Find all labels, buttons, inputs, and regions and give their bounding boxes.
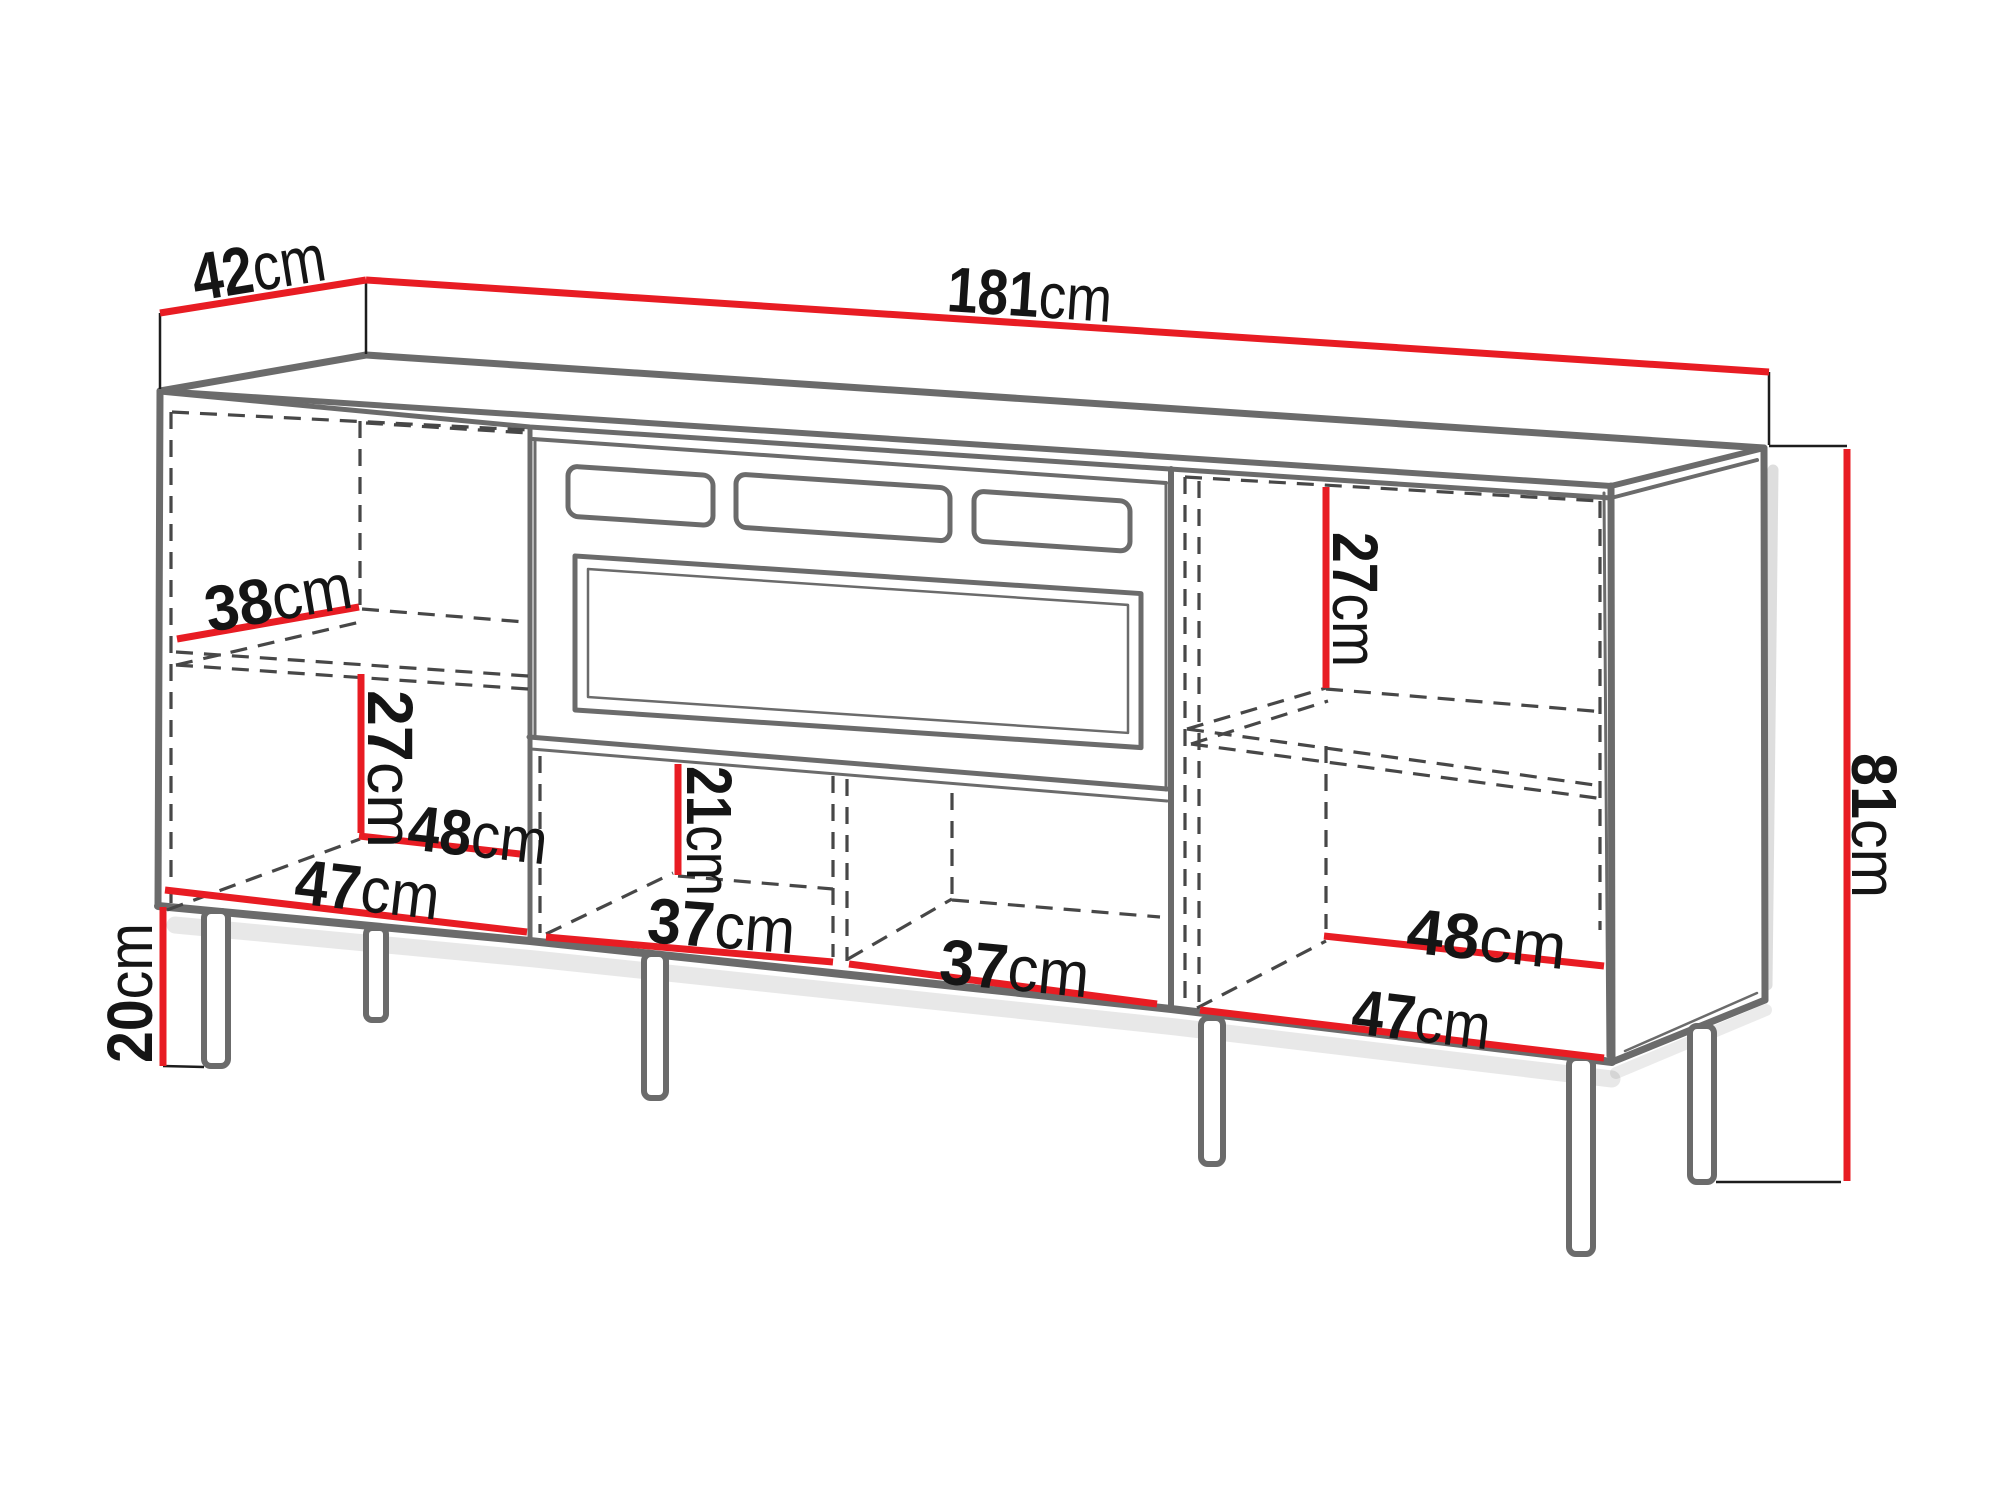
svg-text:27cm: 27cm (1319, 532, 1391, 667)
svg-text:181cm: 181cm (945, 253, 1114, 336)
svg-text:37cm: 37cm (645, 884, 798, 967)
svg-text:20cm: 20cm (94, 923, 166, 1063)
svg-text:21cm: 21cm (673, 766, 745, 896)
svg-text:37cm: 37cm (937, 925, 1093, 1011)
svg-text:81cm: 81cm (1838, 753, 1910, 898)
